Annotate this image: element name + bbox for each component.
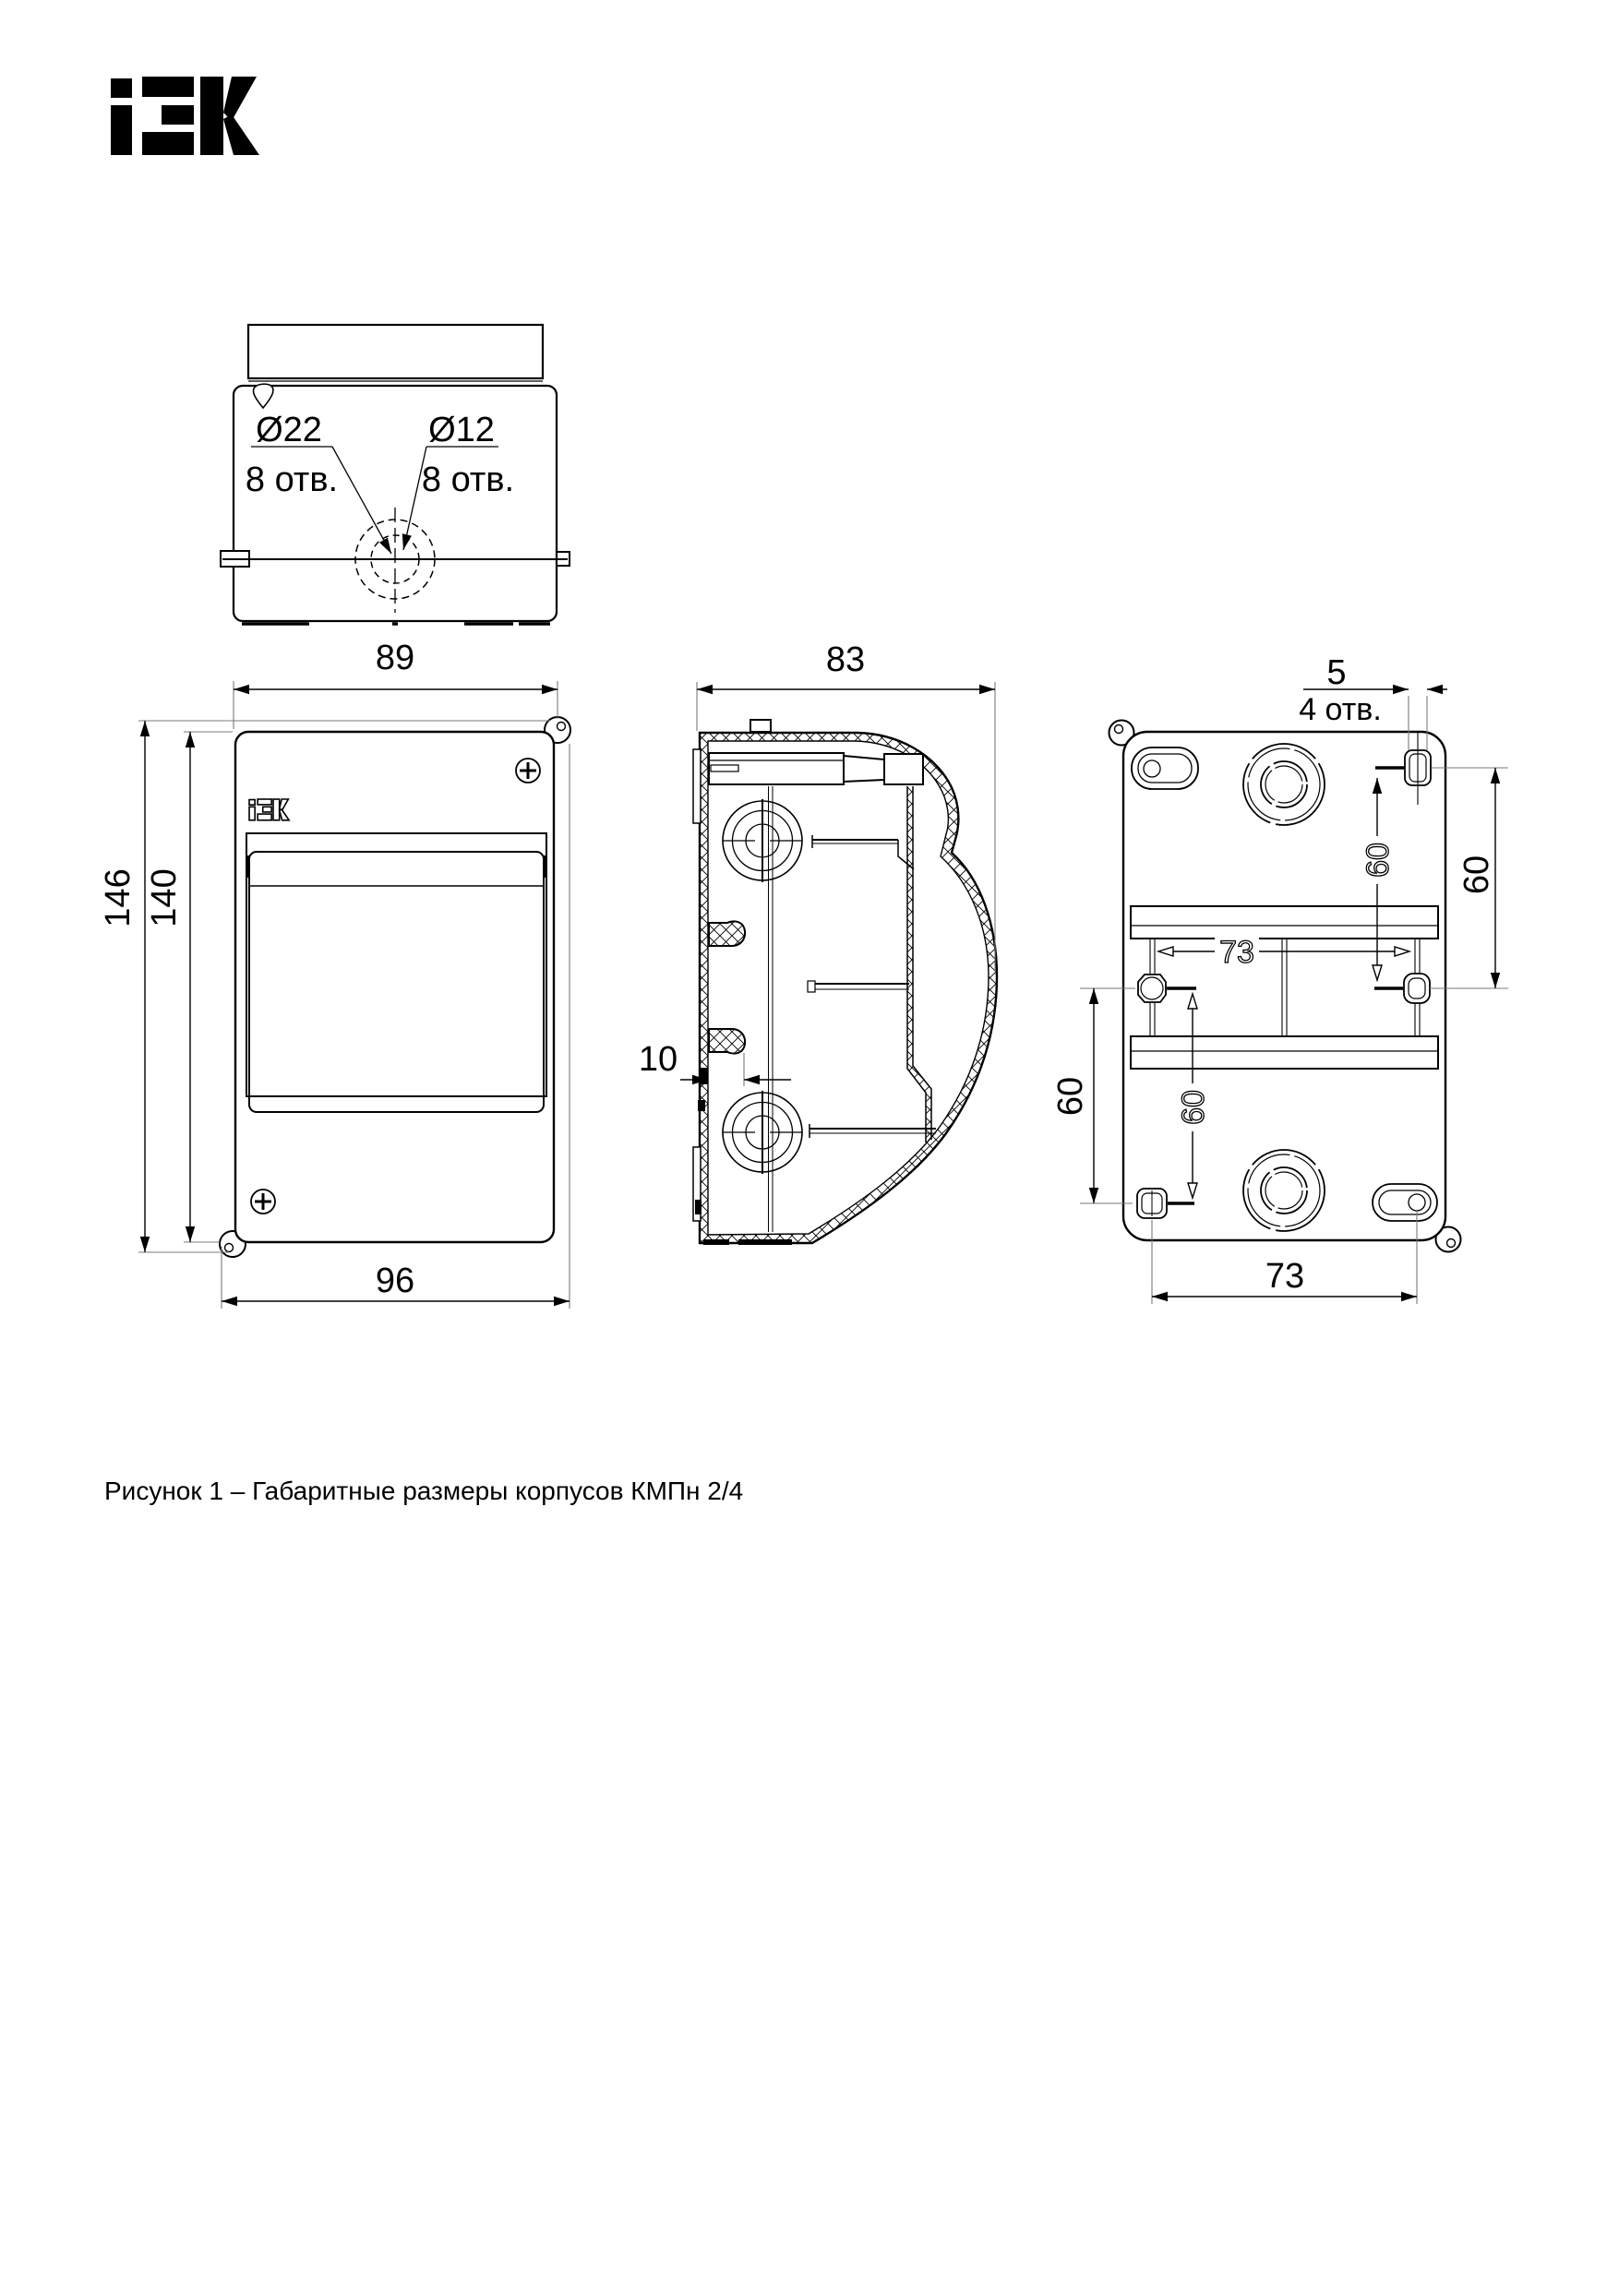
side-dimension-arrows (692, 685, 995, 1084)
rear-ear-hole-top-left (1115, 725, 1123, 734)
inner-cover-wall (907, 786, 931, 1142)
screw-top-right (516, 759, 540, 783)
dim-depth-label: 83 (826, 640, 865, 679)
internal-shelves (808, 835, 936, 1138)
top-view-lid (248, 325, 543, 378)
dim-slot-width-label: 5 (1326, 653, 1346, 692)
din-hook-lower (709, 1029, 745, 1054)
side-dimension-lines (680, 689, 995, 1080)
iek-mini-logo (249, 799, 289, 820)
side-knockout-upper (723, 799, 802, 882)
section-wall-band (700, 733, 997, 1243)
dim-width-top-label: 89 (376, 639, 414, 677)
dim-width-bottom-label: 96 (376, 1262, 414, 1300)
dim-bottom-width-label: 73 (1265, 1257, 1304, 1296)
technical-drawing: Ø22 8 отв. Ø12 8 отв. (0, 0, 1619, 2296)
dim-height-overall-label: 146 (99, 868, 138, 927)
dim-right-span-inner-label: 60 (1361, 843, 1396, 878)
knockout-small-count-label: 8 отв. (422, 460, 514, 499)
ear-hole-bottom-left (225, 1244, 234, 1252)
figure-caption: Рисунок 1 – Габаритные размеры корпусов … (104, 1477, 743, 1505)
iek-logo (111, 77, 259, 155)
dim-height-body-label: 140 (145, 868, 184, 927)
side-extension-lines (697, 682, 995, 1086)
top-plate-assembly (709, 720, 923, 784)
screw-bottom-left (251, 1190, 275, 1214)
ear-hole-top-right (558, 723, 566, 731)
dim-right-span-label: 60 (1457, 855, 1496, 894)
din-hook-upper (709, 921, 745, 946)
dim-slot-note-label: 4 отв. (1299, 692, 1382, 727)
knockout-small-dia-label: Ø12 (428, 411, 495, 449)
side-view: 83 10 (639, 640, 997, 1245)
dim-left-span-label: 60 (1051, 1077, 1090, 1116)
front-view: 89 146 140 96 (99, 639, 570, 1309)
drawing-sheet: Ø22 8 отв. Ø12 8 отв. (0, 0, 1619, 2296)
dim-inner-width-label: 73 (1219, 935, 1254, 970)
top-view: Ø22 8 отв. Ø12 8 отв. (221, 325, 570, 624)
dim-left-span-inner-label: 60 (1176, 1090, 1211, 1125)
rear-view: 5 4 отв. 60 60 73 60 60 73 (1051, 653, 1508, 1304)
rear-ear-hole-bottom-right (1447, 1239, 1456, 1248)
dim-rail-offset-label: 10 (639, 1040, 678, 1079)
knockout-large-dia-label: Ø22 (256, 411, 322, 449)
side-knockout-lower (723, 1091, 802, 1174)
knockout-large-count-label: 8 отв. (246, 460, 338, 499)
